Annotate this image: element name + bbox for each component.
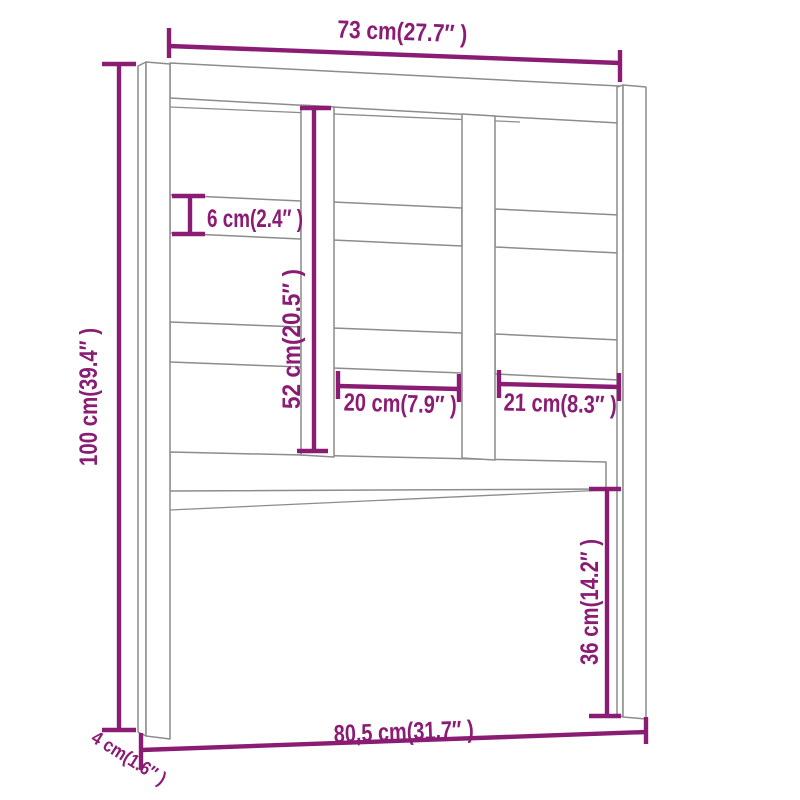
- rail-row1-middle-segment: [333, 202, 462, 246]
- dimension-leg-height: 36 cm(14.2″ ): [576, 489, 621, 716]
- dimension-mid-panel-width: 20 cm(7.9″ ): [338, 371, 459, 419]
- total-height-label: 100 cm(39.4″ ): [75, 328, 103, 466]
- headboard-dimension-diagram: 73 cm(27.7″ ) 100 cm(39.4″ ) 6 cm(2.4″ )…: [0, 0, 800, 800]
- mid-panel-label: 20 cm(7.9″ ): [343, 389, 457, 420]
- top-width-line: [169, 46, 620, 63]
- dimension-bottom-width: 80,5 cm(31.7″ ): [141, 716, 646, 770]
- right-post-front-face: [623, 85, 646, 719]
- bottom-width-label: 80,5 cm(31.7″ ): [333, 716, 474, 749]
- top-rail: [170, 63, 619, 123]
- leg-height-label: 36 cm(14.2″ ): [576, 539, 604, 665]
- right-panel-label: 21 cm(8.3″ ): [503, 389, 617, 420]
- dimension-total-height: 100 cm(39.4″ ): [75, 64, 136, 730]
- top-width-label: 73 cm(27.7″ ): [337, 16, 468, 49]
- inner-height-label: 52 cm(20.5″ ): [278, 269, 306, 409]
- bottom-wide-rail: [170, 452, 606, 491]
- rail-height-label: 6 cm(2.4″ ): [207, 205, 303, 233]
- bottom-wide-rail-underside-edge: [170, 490, 606, 510]
- rail-row1-right-segment: [495, 209, 619, 253]
- rail-row2-middle-segment: [333, 328, 462, 373]
- vertical-divider-right: [462, 114, 495, 460]
- right-panel-line: [499, 384, 619, 387]
- left-post-front-face: [146, 62, 170, 739]
- left-post-side-face: [138, 62, 146, 736]
- rail-row2-right-segment: [495, 334, 619, 380]
- technical-drawing-canvas: 73 cm(27.7″ ) 100 cm(39.4″ ) 6 cm(2.4″ )…: [0, 0, 800, 800]
